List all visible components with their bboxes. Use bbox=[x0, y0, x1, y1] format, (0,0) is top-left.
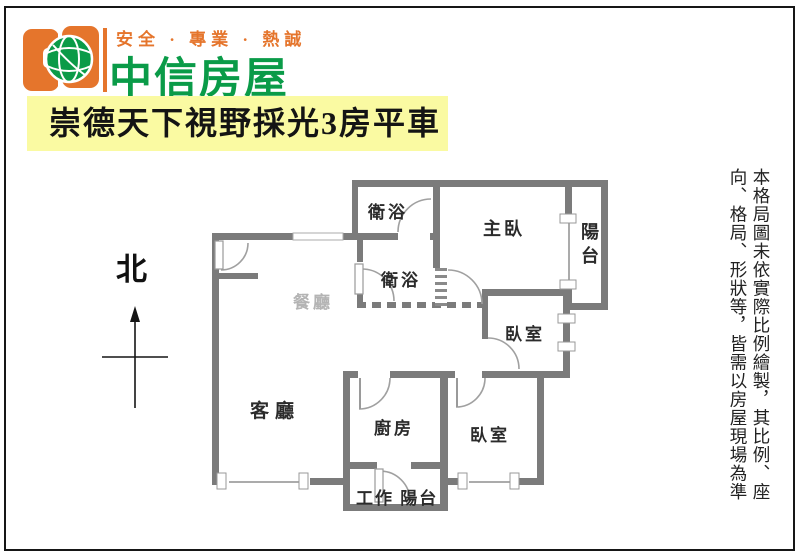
wall-segment bbox=[352, 187, 358, 233]
listing-title: 崇德天下視野採光3房平車 bbox=[49, 96, 441, 151]
wall-segment bbox=[343, 233, 398, 240]
wall-segment bbox=[343, 371, 350, 511]
disclaimer-column-2: 向、格局、形狀等，皆需以房屋現場為準 bbox=[726, 168, 749, 516]
wall-segment bbox=[430, 233, 440, 240]
wall-segment bbox=[440, 371, 448, 511]
room-label-master: 主臥 bbox=[483, 215, 525, 241]
wall-segment bbox=[433, 187, 440, 268]
wall-segment bbox=[357, 240, 363, 262]
hatched-door-marker bbox=[435, 268, 447, 306]
wall-segment bbox=[352, 180, 608, 187]
wall-segment bbox=[350, 462, 377, 469]
room-label-kitchen: 廚房 bbox=[374, 414, 414, 439]
wall-segment bbox=[482, 371, 570, 378]
north-label: 北 bbox=[116, 244, 147, 289]
dashed-wall bbox=[357, 302, 482, 308]
floorplan-flyer: 安全 · 專業 · 熱誠 中信房屋 崇德天下視野採光3房平車 bbox=[0, 0, 800, 553]
wall-segment bbox=[563, 296, 570, 375]
wall-segment bbox=[212, 233, 219, 485]
wall-segment bbox=[565, 303, 608, 310]
disclaimer-column-1: 本格局圖未依實際比例繪製，其比例、座 bbox=[749, 168, 772, 516]
wall-segment bbox=[212, 233, 293, 240]
logo-left-notch bbox=[43, 48, 59, 68]
logo-right-notch bbox=[62, 46, 78, 66]
room-label-bath-top: 衛浴 bbox=[368, 198, 408, 223]
disclaimer-text: 本格局圖未依實際比例繪製，其比例、座 向、格局、形狀等，皆需以房屋現場為準 bbox=[726, 168, 772, 516]
wall-segment bbox=[482, 289, 570, 296]
wall-segment bbox=[565, 187, 572, 216]
room-label-living: 客廳 bbox=[250, 396, 300, 423]
room-label-bath-mid: 衛浴 bbox=[381, 266, 421, 291]
wall-segment bbox=[537, 375, 544, 485]
wall-segment bbox=[411, 462, 440, 469]
room-label-balcony: 陽台 bbox=[576, 222, 602, 282]
logo-divider-bar bbox=[103, 28, 107, 92]
room-label-dining: 餐廳 bbox=[293, 288, 333, 313]
wall-segment bbox=[448, 478, 462, 485]
wall-segment bbox=[310, 478, 347, 485]
room-label-work-balcony: 工作 陽台 bbox=[356, 484, 438, 509]
wall-segment bbox=[601, 180, 608, 310]
wall-segment bbox=[482, 289, 488, 339]
entry-stub-wall bbox=[212, 273, 258, 279]
room-label-bedroom-upper: 臥室 bbox=[505, 320, 545, 345]
wall-segment bbox=[519, 478, 544, 485]
room-label-bedroom-lower: 臥室 bbox=[470, 421, 510, 446]
